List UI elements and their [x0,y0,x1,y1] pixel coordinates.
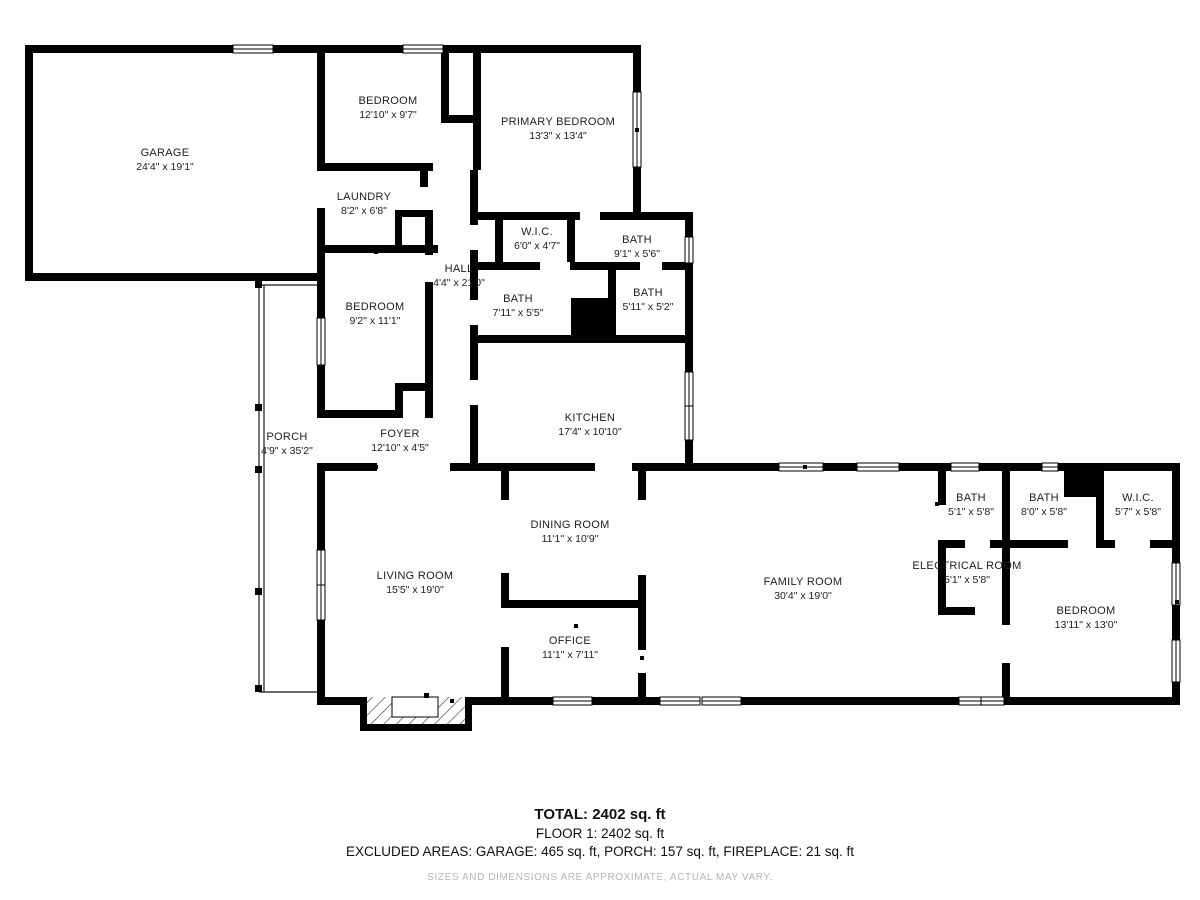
room-label-foyer: FOYER [380,428,419,440]
window-icon [857,463,899,471]
room-dims-bedroom-2: 9'2" x 11'1" [350,315,401,327]
room-label-office: OFFICE [549,635,591,647]
room-dims-living-room: 15'5" x 19'0" [386,584,444,596]
window-icon [1172,640,1180,682]
window-icon [685,406,693,440]
window-icon [981,697,1004,705]
room-dims-bath-4: 5'1" x 5'8" [948,506,994,518]
porch-outline [255,281,317,692]
room-label-living-room: LIVING ROOM [377,570,454,582]
area-summary: TOTAL: 2402 sq. ft FLOOR 1: 2402 sq. ft … [0,806,1200,883]
window-icon [1042,463,1058,471]
room-label-bedroom-2: BEDROOM [346,301,405,313]
room-label-primary-bedroom: PRIMARY BEDROOM [501,116,615,128]
room-dims-dining-room: 11'1" x 10'9" [542,533,599,545]
disclaimer-text: SIZES AND DIMENSIONS ARE APPROXIMATE, AC… [0,872,1200,883]
room-dims-wic-1: 6'0" x 4'7" [514,240,560,252]
excluded-areas-text: EXCLUDED AREAS: GARAGE: 465 sq. ft, PORC… [0,844,1200,859]
window-symbols [233,45,1180,705]
room-label-laundry: LAUNDRY [337,191,392,203]
room-label-kitchen: KITCHEN [565,412,615,424]
room-label-bath-5: BATH [1029,492,1059,504]
floor-area-text: FLOOR 1: 2402 sq. ft [0,826,1200,841]
walls [25,45,1180,705]
room-label-hall: HALL [445,263,474,275]
window-icon [317,318,325,365]
room-dims-laundry: 8'2" x 6'8" [341,205,387,217]
window-icon [317,550,325,585]
room-label-bath-1: BATH [622,234,652,246]
room-dims-hall: 4'4" x 21'0" [433,277,485,289]
room-dims-bath-1: 9'1" x 5'6" [614,248,660,260]
chimney-block [571,298,612,343]
room-label-bath-3: BATH [633,287,663,299]
fireplace [360,693,472,731]
room-dims-bedroom-1: 12'10" x 9'7" [359,109,417,121]
room-label-family-room: FAMILY ROOM [764,576,843,588]
room-dims-primary-bedroom: 13'3" x 13'4" [529,130,587,142]
room-label-electrical-room: ELECTRICAL ROOM [912,560,1021,572]
room-label-porch: PORCH [266,431,307,443]
room-dims-bedroom-3: 13'11" x 13'0" [1055,619,1118,631]
room-label-wic-1: W.I.C. [521,226,553,238]
window-icon [951,463,979,471]
window-icon [702,697,741,705]
room-dims-family-room: 30'4" x 19'0" [774,590,832,602]
room-dims-kitchen: 17'4" x 10'10" [558,426,622,438]
room-dims-porch: 4'9" x 35'2" [261,445,313,457]
window-icon [685,237,693,263]
window-icon [660,697,700,705]
room-dims-office: 11'1" x 7'11" [542,649,598,661]
room-dims-bath-5: 8'0" x 5'8" [1021,506,1067,518]
room-label-garage: GARAGE [141,147,190,159]
room-dims-garage: 24'4" x 19'1" [136,161,194,173]
room-label-bedroom-1: BEDROOM [359,95,418,107]
room-label-bath-2: BATH [503,293,533,305]
room-label-dining-room: DINING ROOM [530,519,609,531]
floor-plan-page: { "rooms": [ {"name":"GARAGE","dims":"24… [0,0,1200,900]
window-icon [1172,563,1180,605]
total-area-text: TOTAL: 2402 sq. ft [0,806,1200,823]
window-icon [779,463,823,471]
floor-plan-svg: GARAGE 24'4" x 19'1" BEDROOM 12'10" x 9'… [0,0,1200,900]
window-icon [685,372,693,406]
room-label-bedroom-3: BEDROOM [1057,605,1116,617]
window-icon [403,45,443,53]
window-icon [317,585,325,620]
window-icon [233,45,273,53]
room-label-wic-2: W.I.C. [1122,492,1154,504]
room-dims-wic-2: 5'7" x 5'8" [1115,506,1161,518]
window-icon [553,697,592,705]
room-dims-foyer: 12'10" x 4'5" [371,442,429,454]
window-icon [959,697,981,705]
room-dims-bath-3: 5'11" x 5'2" [623,301,674,313]
room-label-bath-4: BATH [956,492,986,504]
room-dims-electrical-room: 5'1" x 5'8" [944,574,990,586]
room-dims-bath-2: 7'11" x 5'5" [493,307,544,319]
